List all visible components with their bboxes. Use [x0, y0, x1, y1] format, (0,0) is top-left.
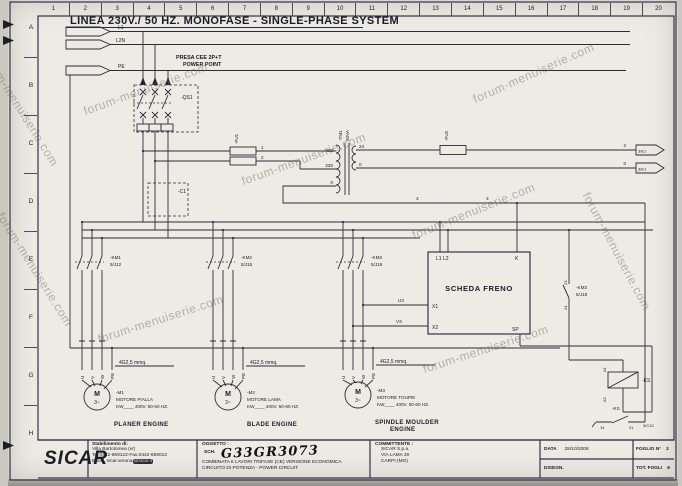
row-letter: F: [25, 314, 37, 321]
km3-name: -KM3: [371, 255, 382, 260]
ruler-cell: 16: [515, 3, 547, 16]
data-value: 28/10/2008: [565, 447, 589, 453]
plug-arrow-icon: [165, 77, 171, 85]
handwritten-code: G33GR3073: [221, 443, 320, 461]
data-cell: DATA 28/10/2008 DISEGN.: [540, 440, 633, 478]
ruler-cell: 14: [451, 3, 483, 16]
motor-1-desc: MOTORE PIALLA: [116, 397, 154, 402]
power-point-label-en: POWER POINT: [183, 62, 222, 68]
motor-1-name: -M1: [116, 390, 124, 395]
foglio-label: FOGLIO N°: [636, 447, 661, 452]
ruler-cell: 6: [196, 3, 228, 16]
brake-board-title: SCHEDA FRENO: [445, 284, 513, 293]
ruler-cell: 13: [419, 3, 451, 16]
sp-loop-wire: [520, 334, 652, 412]
km3-aux-name: -KM3: [576, 285, 587, 290]
brake-terminal-l1l2: L1 L2: [436, 256, 449, 262]
tot-fogli-value: 6: [667, 466, 670, 472]
motor-3-en2: ENGINE: [390, 427, 415, 433]
km3-aux-ref: 5/J18: [576, 292, 588, 297]
terminal-w: W: [100, 374, 105, 379]
factory-email-domain: @sicar.it: [133, 459, 153, 464]
qs1-label: -QS1: [181, 95, 193, 101]
factory-email: Email. sicar.verona: [92, 459, 133, 464]
brake-board: L1 L2 K SCHEDA FRENO X1 X2 SP U3 V3: [352, 202, 652, 412]
motor-2-branch: 4G2,5 mmq. U V W PE M 3~ -M2 MOTORE LAMA…: [211, 347, 305, 428]
terminal-v: V: [351, 375, 356, 379]
cable-label: 4G2,5 mmq.: [250, 360, 278, 366]
control-circuit: -FU1 1 2: [142, 133, 336, 169]
km2-name: -KM2: [241, 255, 252, 260]
ruler-cell: 2: [69, 3, 101, 16]
wire-sec0-label: 0: [623, 161, 626, 166]
ks-contact-ref: 3/C10: [643, 423, 654, 428]
row-letter: E: [25, 256, 37, 263]
foglio-value: 2: [666, 447, 669, 453]
ruler-cell: 20: [642, 3, 674, 16]
cable-label: 4G2,5 mmq.: [380, 359, 408, 365]
ks-contact-label: -KS: [612, 406, 620, 411]
fuse-fu2: [440, 146, 466, 155]
terminal-v: V: [90, 375, 95, 379]
tap-230: 230: [325, 163, 333, 168]
coil-terminal-a2: A2: [602, 396, 607, 402]
connector-ref: 3/E1: [638, 149, 647, 154]
oggetto-line2: CIRCUITO DI POTENZA - POWER CIRCUIT: [202, 466, 370, 472]
oggetto-cell: OGGETTO : SCH. G33GR3073 COMBINATA 6 LAV…: [199, 440, 370, 478]
terminal-u: U: [211, 376, 216, 379]
km1-ref: 5/J12: [110, 262, 122, 267]
ruler-cell: 8: [260, 3, 292, 16]
terminal-pe: PE: [241, 373, 246, 379]
row-tick: [24, 57, 37, 58]
ruler-cell: 19: [610, 3, 642, 16]
qs1-drop-wires: [143, 32, 168, 86]
ruler-cell: 4: [133, 3, 165, 16]
bus-l2n: L2N: [66, 38, 630, 49]
brake-terminal-sp: SP: [512, 327, 519, 333]
motor-1-rating: KW____ 400V. 50-60 HZ.: [116, 404, 168, 409]
drawing-frame: [38, 16, 674, 440]
motor-3-rating: KW____ 400V. 50-60 HZ.: [377, 402, 429, 407]
c1-label: -C1: [178, 189, 186, 195]
connector-ref: 3/E1: [638, 167, 647, 172]
motor-2-symbol: M: [225, 391, 231, 398]
row-letter: G: [25, 372, 37, 379]
motor-3-en1: SPINDLE MOULDER: [375, 420, 439, 426]
aux-terminal-23: 23: [563, 280, 568, 285]
wire-3-label: 3: [486, 196, 489, 201]
row-tick: [24, 289, 37, 290]
ruler-cell: 15: [483, 3, 515, 16]
row-letter: H: [25, 430, 37, 437]
wire-v3-label: V3: [396, 319, 402, 324]
row-letter: B: [25, 82, 37, 89]
motor-1-en: PLANER ENGINE: [114, 422, 169, 428]
bus-pe-label: PE: [118, 64, 125, 70]
row-tick: [24, 231, 37, 232]
tm1-name: -TM1: [338, 130, 343, 141]
terminal-w: W: [361, 374, 366, 379]
row-letter: D: [25, 198, 37, 205]
ruler-cell: 10: [324, 3, 356, 16]
wire-1-label: 1: [261, 145, 264, 150]
terminal-w: W: [231, 374, 236, 379]
transformer-tm1: 400 230 0 24 0 -TM1 50VA: [325, 129, 364, 195]
row-letter: A: [25, 24, 37, 31]
tap-24: 24: [359, 144, 365, 149]
aux-terminal-24: 24: [563, 305, 568, 310]
wire-sec2-label: 2: [623, 143, 626, 148]
brake-terminal-x2: X2: [432, 325, 438, 331]
ruler-cell: 1: [38, 3, 69, 16]
committente-cell: COMMITTENTE : SICAR S.p.a. VIA LAMA 30 C…: [372, 440, 540, 478]
ruler-cell: 7: [228, 3, 260, 16]
ruler-cell: 12: [387, 3, 419, 16]
wire-2-label: 2: [261, 155, 264, 160]
motor-2-phase: 3~: [225, 400, 231, 406]
schematic-svg: LINEA 230V./ 50 HZ. MONOFASE - SINGLE-PH…: [0, 0, 682, 486]
row-tick: [24, 347, 37, 348]
power-point-label-it: PRESA CEE 2P+T: [176, 55, 222, 61]
coil-terminal-a1: A1: [602, 366, 607, 372]
ks-terminal-21: 21: [629, 425, 634, 430]
motor-2-desc: MOTORE LAMA: [247, 397, 282, 402]
motor-3-branch: 4G2,5 mmq. U V W PE M 3~ -M3 MOTORE TOUP…: [341, 347, 439, 433]
motor-3-symbol: M: [355, 389, 361, 396]
data-label: DATA: [544, 447, 557, 452]
fu1-label: -FU1: [234, 133, 239, 144]
wire-u3-label: U3: [398, 298, 404, 303]
motor-3-phase: 3~: [355, 398, 361, 404]
ruler-cell: 3: [101, 3, 133, 16]
row-tick: [24, 405, 37, 406]
qs1-switch: -QS1: [133, 85, 198, 132]
tap-0: 0: [330, 180, 333, 185]
motor-1-symbol: M: [94, 391, 100, 398]
tm1-rating: 50VA: [345, 129, 350, 141]
motor-2-name: -M2: [247, 390, 255, 395]
plug-arrow-icon: [140, 77, 146, 85]
row-letter: C: [25, 140, 37, 147]
km1-name: -KM1: [110, 255, 121, 260]
tot-fogli-label: TOT. FOGLI: [636, 466, 662, 471]
brake-terminal-x1: X1: [432, 304, 438, 310]
km3-aux-contact: 23 24 -KM3 5/J18: [563, 229, 623, 372]
fu2-label: -FU2: [444, 130, 449, 141]
motor-2-en: BLADE ENGINE: [247, 422, 297, 428]
ks-coil-label: -KS: [642, 378, 651, 384]
disegn-label: DISEGN.: [544, 466, 564, 471]
cable-label: 4G2,5 mmq.: [119, 360, 147, 366]
terminal-u: U: [80, 376, 85, 379]
logo-cell: SICAR: [38, 440, 88, 478]
wire-3-run: [283, 186, 645, 203]
committente-line3: CARPI (MO): [375, 459, 540, 465]
motor-3-desc: MOTORE TOUPIE: [377, 395, 415, 400]
bus-pe: PE: [66, 64, 626, 75]
bus-l1-label: L1: [118, 25, 124, 31]
terminal-pe: PE: [110, 373, 115, 379]
foglio-cell: FOGLIO N° 2 TOT. FOGLI 6: [633, 440, 674, 478]
motor-3-name: -M3: [377, 388, 385, 393]
terminal-v: V: [221, 375, 226, 379]
km2-ref: 5/J15: [241, 262, 253, 267]
ruler-cell: 18: [578, 3, 610, 16]
column-ruler: 1234567891011121314151617181920: [38, 3, 674, 16]
row-tick: [24, 173, 37, 174]
motor-1-branch: 4G2,5 mmq. U V W PE M 3~ -M1 MOTORE PIAL…: [80, 347, 174, 428]
terminal-pe: PE: [371, 373, 376, 379]
title-block: SICAR Stabilimento di: Villa Bartolomea …: [38, 440, 674, 478]
bus-l2n-label: L2N: [116, 38, 126, 44]
brake-terminal-k: K: [515, 256, 519, 262]
plug-arrow-icon: [152, 77, 158, 85]
terminal-u: U: [341, 376, 346, 379]
km3-ref: 5/J18: [371, 262, 383, 267]
ruler-cell: 17: [547, 3, 579, 16]
motor-2-rating: KW____ 400V. 50-60 HZ.: [247, 404, 299, 409]
fuse-fu1-b: [230, 157, 256, 165]
fuse-fu1-a: [230, 147, 256, 155]
motor-1-phase: 3~: [94, 400, 100, 406]
ruler-cell: 5: [164, 3, 196, 16]
secondary-circuit: -FU2 2 0 3/E1 3/E1: [356, 130, 664, 173]
ruler-cell: 9: [292, 3, 324, 16]
ks-relay-coil: A1 A2 -KS: [602, 366, 651, 402]
row-tick: [24, 115, 37, 116]
sch-label: SCH.: [204, 450, 215, 456]
tap-sec0: 0: [359, 162, 362, 167]
wire-3-label: 3: [416, 196, 419, 201]
factory-cell: Stabilimento di: Villa Bartolomea (vr) T…: [90, 440, 197, 478]
tap-400: 400: [325, 148, 333, 153]
ks-terminal-14: 14: [600, 425, 605, 430]
ruler-cell: 11: [355, 3, 387, 16]
